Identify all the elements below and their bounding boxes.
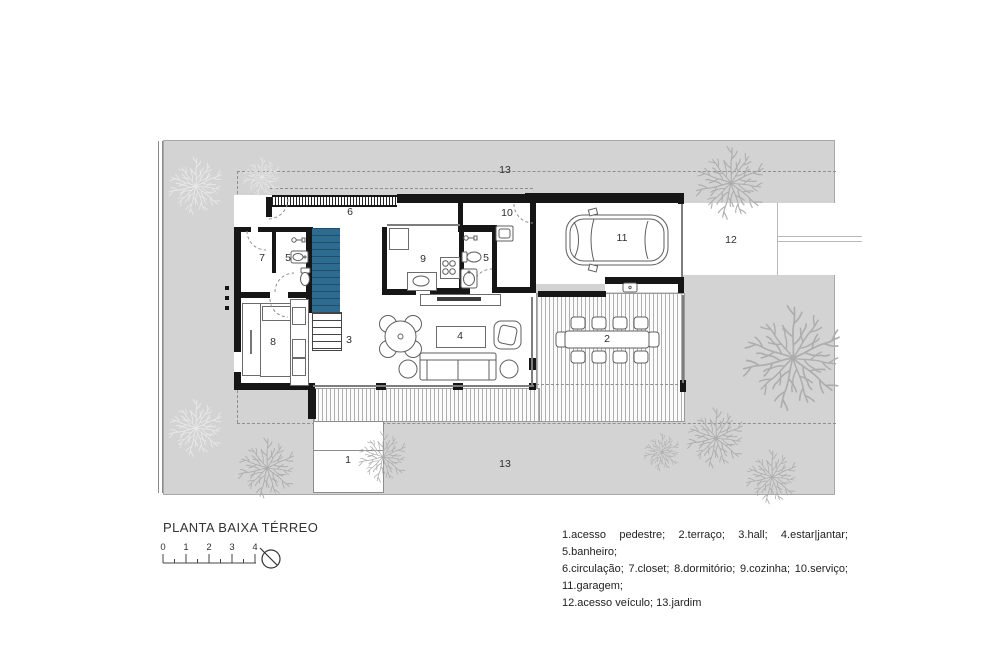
curb-line-1 <box>777 236 862 237</box>
glass-facade-east <box>531 297 533 385</box>
garage-floor <box>533 193 683 284</box>
wardrobe-door <box>292 358 306 376</box>
wardrobe-door <box>292 307 306 325</box>
service-counter <box>605 284 678 292</box>
wall <box>530 195 536 293</box>
room-label-garagem: 11 <box>617 232 628 244</box>
drawing-title: PLANTA BAIXA TÉRREO <box>163 520 318 535</box>
room-label-banheiro-2: 5 <box>483 252 489 264</box>
entry-path-step <box>313 421 384 452</box>
scale-tick-0: 0 <box>160 542 165 553</box>
wall-tick <box>225 306 229 310</box>
terrace-deck <box>536 293 685 422</box>
scale-bar-ticks <box>163 554 256 563</box>
wall <box>272 231 276 273</box>
wall <box>241 227 251 232</box>
terrace-edge <box>682 295 684 383</box>
wall-tick <box>225 286 229 290</box>
room-label-cozinha: 9 <box>420 253 426 265</box>
room-label-estar-jantar: 4 <box>457 330 463 342</box>
stair-upper-flight <box>312 228 340 312</box>
legend: 1.acesso pedestre; 2.terraço; 3.hall; 4.… <box>562 527 848 612</box>
mirror <box>250 330 252 354</box>
room-label-closet: 7 <box>259 252 265 264</box>
room-label-jardim-bottom: 13 <box>499 458 511 470</box>
wall <box>258 227 313 232</box>
scale-tick-4: 4 <box>252 542 257 553</box>
lot-street-edge <box>158 141 163 493</box>
bedroom-bench <box>242 303 262 376</box>
curb-line-2 <box>777 241 862 242</box>
room-label-circulacao: 6 <box>347 206 353 218</box>
driveway-floor <box>683 203 862 275</box>
legend-line-2: 6.circulação; 7.closet; 8.dormitório; 9.… <box>562 561 848 595</box>
room-label-servico: 10 <box>501 207 513 219</box>
setback-line-top <box>237 171 836 172</box>
room-label-dormitorio: 8 <box>270 336 276 348</box>
wall <box>492 227 497 292</box>
floor-plan-sheet: 1 2 3 4 5 5 6 7 8 9 10 11 12 13 13 PLANT… <box>0 0 1000 652</box>
room-label-acesso-veiculo: 12 <box>725 234 737 246</box>
kitchen-counter <box>387 224 460 226</box>
garage-door-line <box>681 204 683 278</box>
room-label-acesso-pedestre: 1 <box>345 454 351 466</box>
scale-tick-2: 2 <box>206 542 211 553</box>
glass-facade-south <box>313 385 534 387</box>
scale-tick-3: 3 <box>229 542 234 553</box>
room-label-jardim-top: 13 <box>499 164 511 176</box>
room-label-hall: 3 <box>346 334 352 346</box>
wall <box>538 291 606 297</box>
gate-line <box>777 203 778 275</box>
south-deck <box>313 388 540 422</box>
room-label-banheiro-1: 5 <box>285 252 291 264</box>
kitchen-island <box>407 272 437 291</box>
scale-tick-1: 1 <box>183 542 188 553</box>
room-label-terraco: 2 <box>604 333 610 345</box>
wall-hatched <box>272 195 397 207</box>
wall <box>234 292 270 298</box>
stair-lower-flight <box>312 312 342 351</box>
wall-tick <box>225 296 229 300</box>
sideboard-tv <box>437 297 481 301</box>
fridge <box>389 228 409 250</box>
wall <box>382 227 387 292</box>
legend-line-3: 12.acesso veículo; 13.jardim <box>562 595 848 612</box>
wall <box>308 389 316 419</box>
upper-floor-projection <box>536 384 683 385</box>
wall-garage-top <box>525 193 683 203</box>
wall <box>605 277 684 284</box>
wardrobe-door <box>292 339 306 358</box>
stove <box>440 257 460 279</box>
wall <box>492 287 536 293</box>
roof-projection-line <box>270 188 533 189</box>
wall <box>678 193 684 204</box>
north-indicator-icon <box>260 548 280 568</box>
legend-line-1: 1.acesso pedestre; 2.terraço; 3.hall; 4.… <box>562 527 848 561</box>
bed-pillow <box>262 306 291 321</box>
window-gap <box>234 352 241 372</box>
